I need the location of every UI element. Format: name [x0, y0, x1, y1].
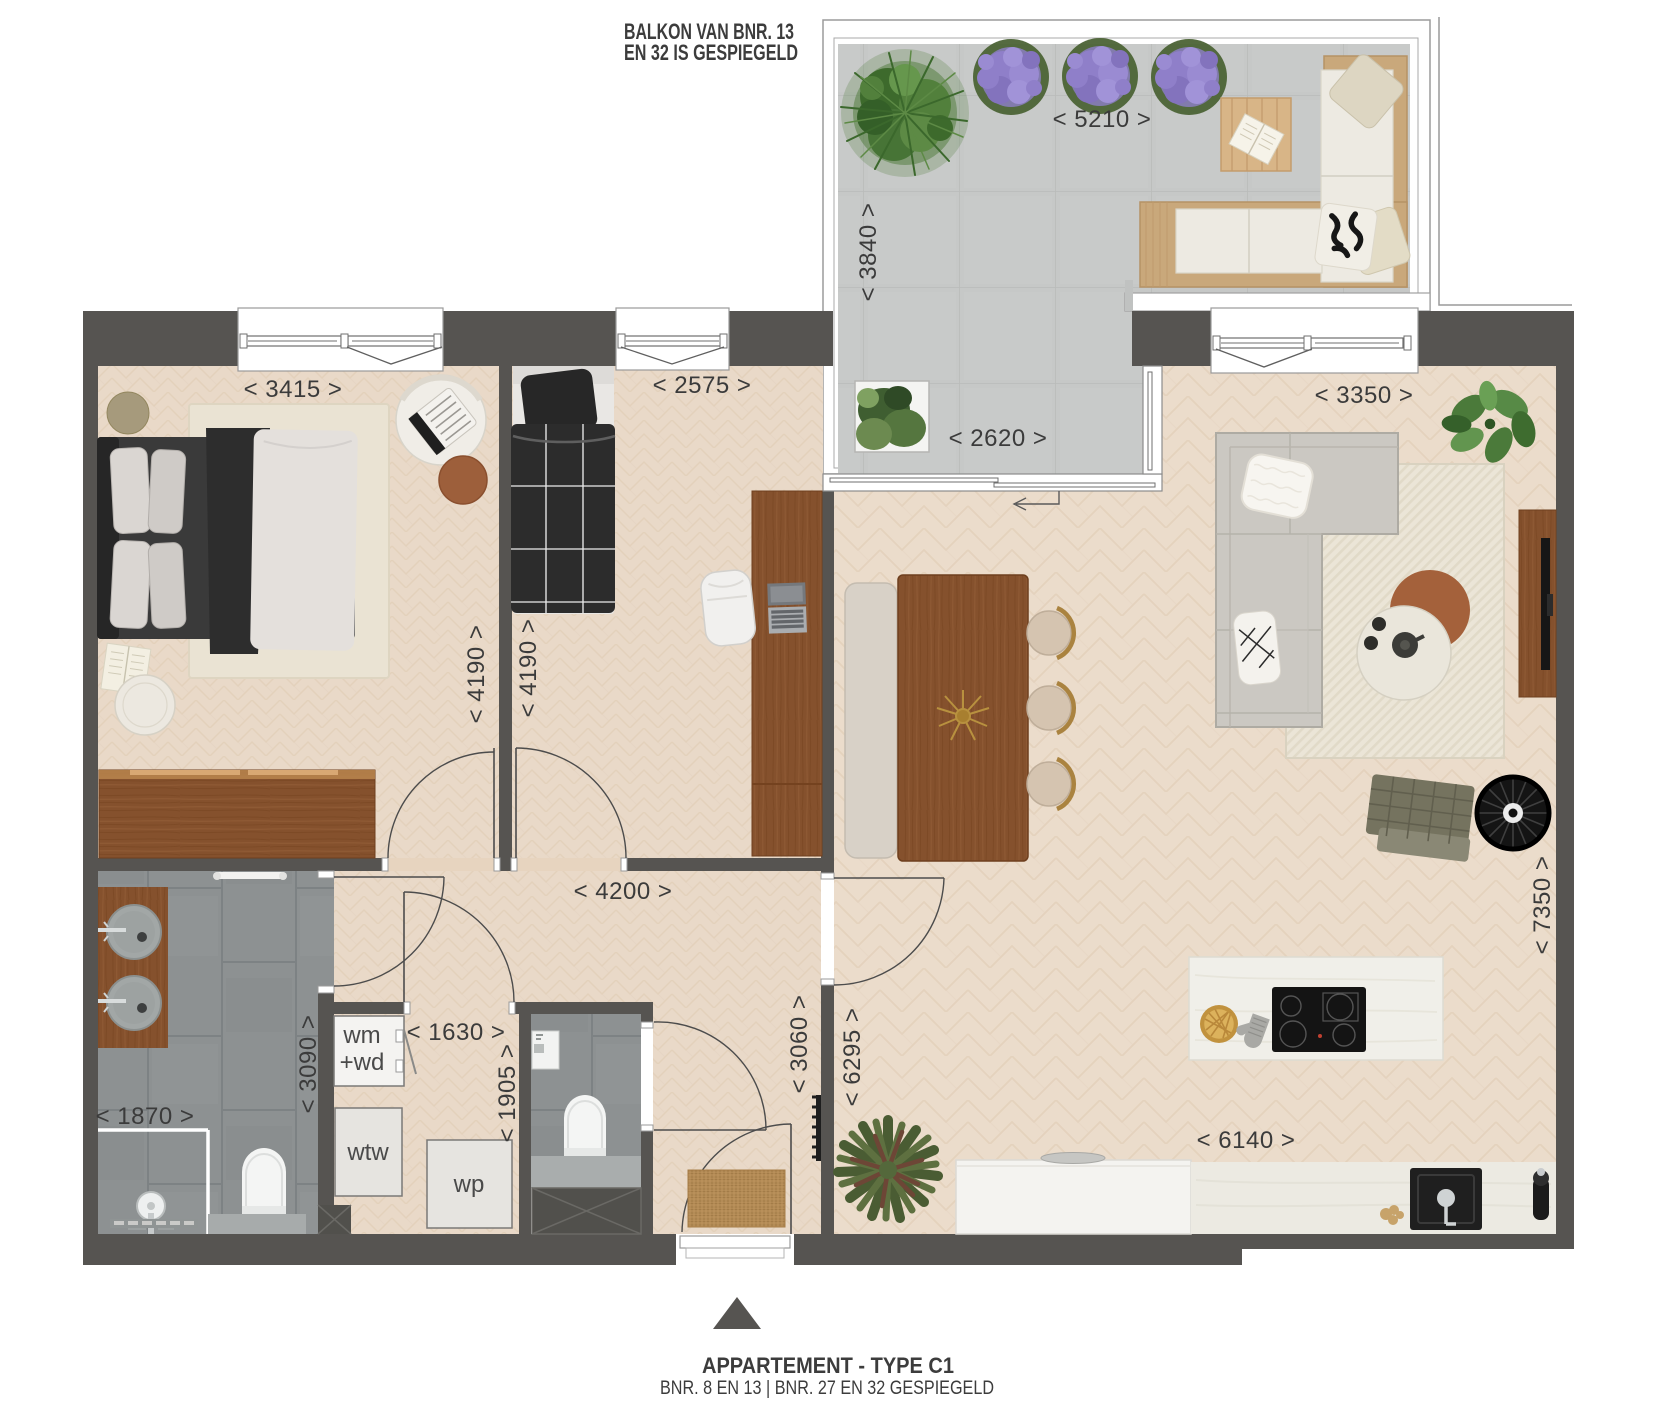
svg-text:< 6295 >: < 6295 > [839, 1008, 866, 1107]
svg-text:< 1870 >: < 1870 > [96, 1103, 195, 1130]
svg-text:APPARTEMENT - TYPE C1: APPARTEMENT - TYPE C1 [702, 1353, 954, 1378]
svg-text:wp: wp [453, 1171, 485, 1198]
svg-text:BNR. 8 EN 13 | BNR. 27 EN 32 G: BNR. 8 EN 13 | BNR. 27 EN 32 GESPIEGELD [660, 1377, 994, 1399]
svg-text:< 6140 >: < 6140 > [1197, 1127, 1296, 1154]
svg-text:< 2620 >: < 2620 > [949, 425, 1048, 452]
svg-text:< 3060 >: < 3060 > [786, 995, 813, 1094]
svg-text:wtw: wtw [346, 1139, 389, 1166]
svg-text:< 2575 >: < 2575 > [653, 372, 752, 399]
svg-text:< 7350 >: < 7350 > [1529, 856, 1556, 955]
svg-text:< 4200 >: < 4200 > [574, 878, 673, 905]
svg-text:< 4190 >: < 4190 > [463, 625, 490, 724]
svg-text:+wd: +wd [340, 1049, 385, 1076]
svg-text:< 5210 >: < 5210 > [1053, 106, 1152, 133]
svg-text:< 1905 >: < 1905 > [494, 1044, 521, 1143]
svg-text:< 4190 >: < 4190 > [515, 619, 542, 718]
svg-text:EN 32 IS GESPIEGELD: EN 32 IS GESPIEGELD [624, 40, 798, 65]
svg-text:< 3415 >: < 3415 > [244, 376, 343, 403]
svg-text:< 3840 >: < 3840 > [855, 203, 882, 302]
svg-text:< 1630 >: < 1630 > [407, 1019, 506, 1046]
svg-text:wm: wm [342, 1022, 380, 1049]
svg-text:< 3090 >: < 3090 > [295, 1015, 322, 1114]
svg-text:< 3350 >: < 3350 > [1315, 382, 1414, 409]
